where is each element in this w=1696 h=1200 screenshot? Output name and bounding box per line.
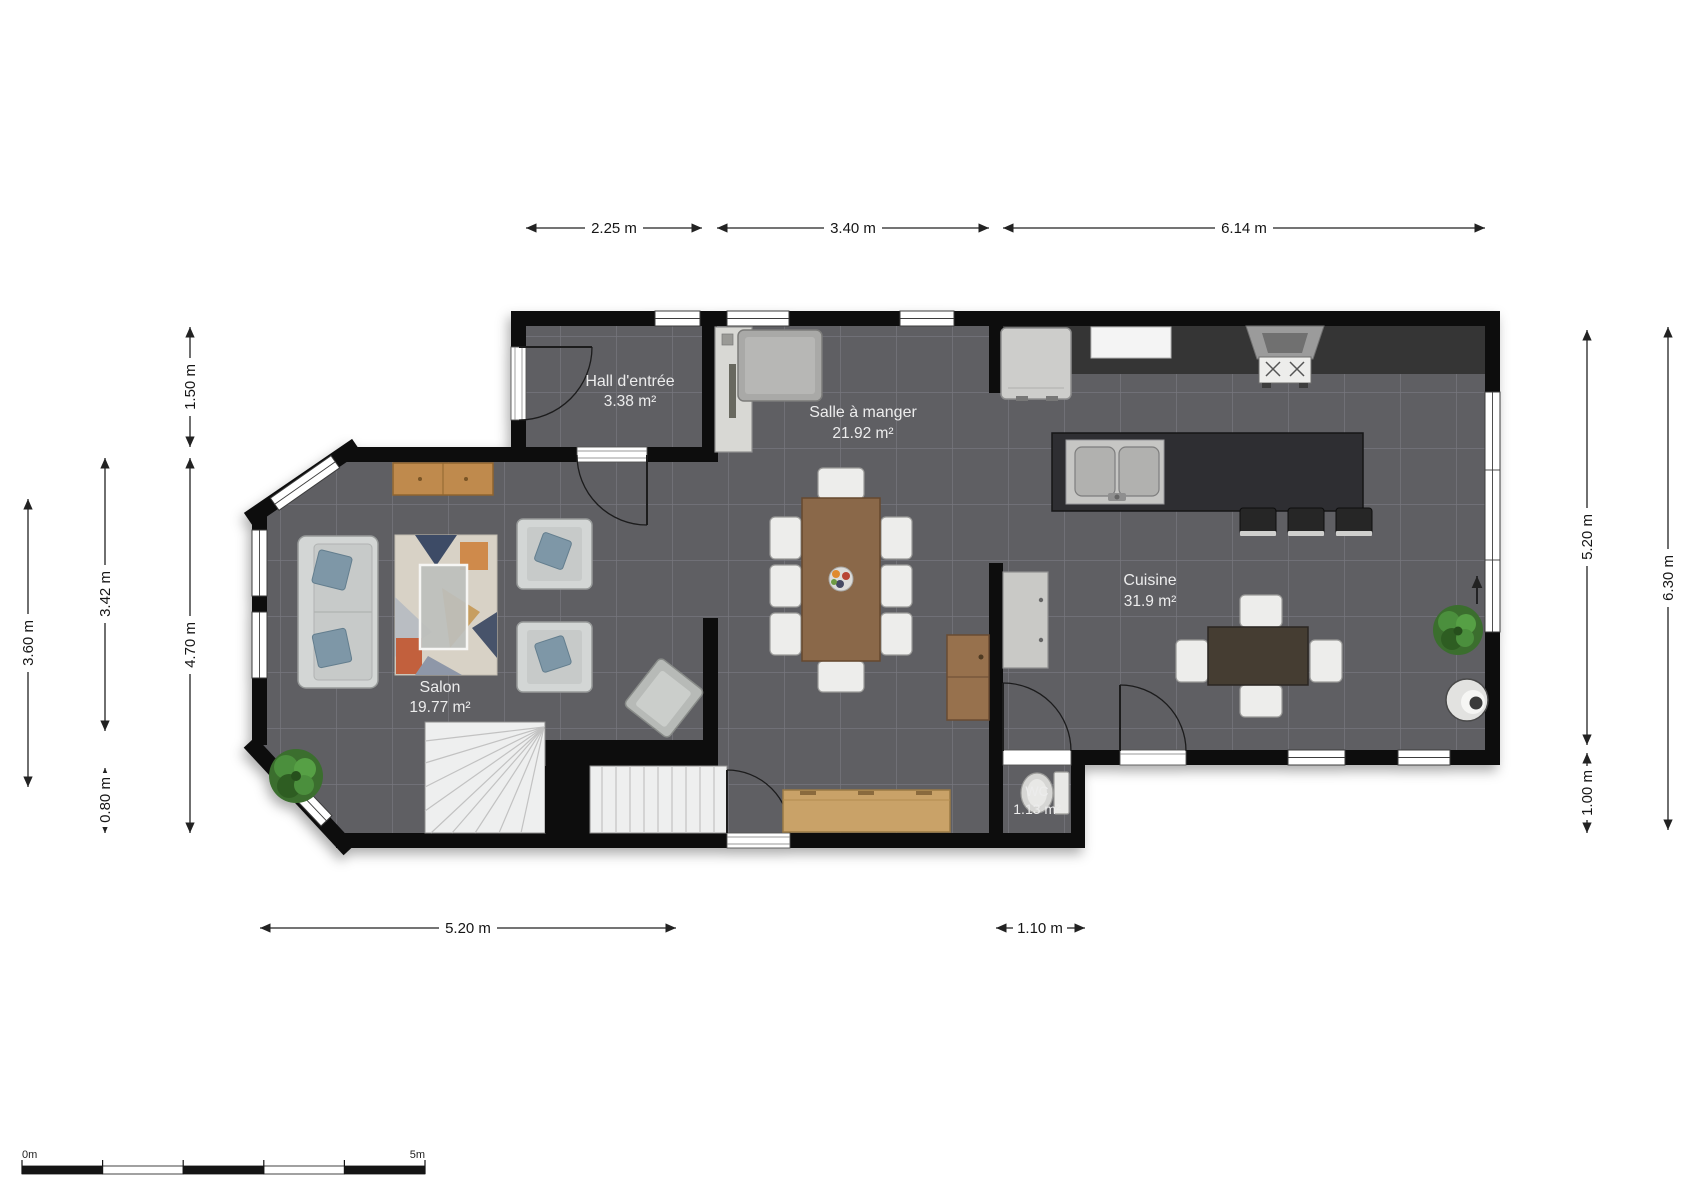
dining-chair-bottom xyxy=(818,661,864,692)
kitchen-table xyxy=(1208,627,1308,685)
dim-left-3-42: 3.42 m xyxy=(96,458,115,731)
fruit-bowl xyxy=(829,567,853,591)
svg-text:6.30 m: 6.30 m xyxy=(1660,555,1677,601)
dim-left-3-60: 3.60 m xyxy=(19,499,38,787)
dim-top-2-25: 2.25 m xyxy=(526,218,702,237)
wall-kitchen-stub-lower xyxy=(989,563,1003,848)
coffee-table xyxy=(420,565,467,649)
window-kitchen-bottom-2 xyxy=(1398,750,1450,765)
salon-sideboard xyxy=(393,463,493,495)
window-salon-left-2 xyxy=(252,612,267,678)
sofa xyxy=(298,536,378,688)
salon-plant xyxy=(269,749,323,803)
bar-stools xyxy=(1240,508,1372,536)
dining-chair-right-3 xyxy=(881,613,912,655)
floor-plan-page: Hall d'entrée 3.38 m² Salle à manger 21.… xyxy=(0,0,1696,1200)
dim-bottom-1-10: 1.10 m xyxy=(996,918,1085,937)
dim-left-0-80: 0.80 m xyxy=(96,768,115,833)
svg-text:0.80 m: 0.80 m xyxy=(97,777,114,823)
dim-right-6-30: 6.30 m xyxy=(1659,327,1678,830)
wall-stairs xyxy=(538,740,718,766)
building: Hall d'entrée 3.38 m² Salle à manger 21.… xyxy=(252,311,1500,848)
decor-bowl xyxy=(1446,679,1488,721)
svg-text:3.60 m: 3.60 m xyxy=(20,620,37,666)
cooktop xyxy=(1091,327,1171,358)
hall-label: Hall d'entrée xyxy=(585,373,674,390)
dining-chair-right-1 xyxy=(881,517,912,559)
dining-bench xyxy=(783,790,950,832)
dining-chair-left-1 xyxy=(770,517,801,559)
kitchen-chair-bottom xyxy=(1240,685,1282,717)
scale-bar: 0m 5m xyxy=(22,1149,425,1174)
kitchen-chair-left xyxy=(1176,640,1208,682)
dim-right-5-20: 5.20 m xyxy=(1578,330,1597,745)
window-top-hall xyxy=(655,311,700,326)
dining-brown-cabinet xyxy=(947,635,989,720)
svg-text:2.25 m: 2.25 m xyxy=(591,220,637,237)
sink-basin-right xyxy=(1119,447,1159,496)
svg-text:5.20 m: 5.20 m xyxy=(1579,514,1596,560)
bar-stool-2 xyxy=(1288,508,1324,536)
fridge xyxy=(1001,328,1071,401)
kitchen-gray-cabinet xyxy=(1003,572,1048,668)
dim-bottom-5-20: 5.20 m xyxy=(260,918,676,937)
wc-label: WC xyxy=(1025,783,1048,799)
window-salon-left-1 xyxy=(252,530,267,596)
kitchen-area: 31.9 m² xyxy=(1124,593,1177,610)
sofa-pillow-1 xyxy=(311,549,352,590)
scale-start-label: 0m xyxy=(22,1149,37,1161)
svg-text:1.00 m: 1.00 m xyxy=(1579,770,1596,816)
svg-text:4.70 m: 4.70 m xyxy=(182,622,199,668)
stairs-void xyxy=(545,766,590,833)
dining-chair-left-3 xyxy=(770,613,801,655)
bar-stool-1 xyxy=(1240,508,1276,536)
armchair-1 xyxy=(517,519,592,589)
dim-right-1-00: 1.00 m xyxy=(1578,753,1597,833)
armchair-2 xyxy=(517,622,592,692)
dining-sideboard xyxy=(738,330,822,401)
wall-bottom xyxy=(336,833,1085,848)
svg-text:5.20 m: 5.20 m xyxy=(445,920,491,937)
svg-text:1.50 m: 1.50 m xyxy=(182,364,199,410)
kitchen-counter xyxy=(1003,326,1485,374)
scale-bar-segments xyxy=(22,1166,425,1174)
kitchen-island xyxy=(1052,433,1363,511)
svg-text:3.40 m: 3.40 m xyxy=(830,220,876,237)
kitchen-chair-right xyxy=(1310,640,1342,682)
salon-area: 19.77 m² xyxy=(409,699,470,716)
svg-text:1.10 m: 1.10 m xyxy=(1017,920,1063,937)
svg-text:6.14 m: 6.14 m xyxy=(1221,220,1267,237)
kitchen-label: Cuisine xyxy=(1123,572,1176,589)
dining-chair-top xyxy=(818,468,864,499)
window-kitchen-bottom-1 xyxy=(1288,750,1345,765)
dim-left-1-50: 1.50 m xyxy=(181,327,200,447)
wc-area: 1.13 m² xyxy=(1013,801,1061,817)
salon-label: Salon xyxy=(420,679,461,696)
dining-label: Salle à manger xyxy=(809,404,917,421)
dim-top-6-14: 6.14 m xyxy=(1003,218,1485,237)
svg-text:3.42 m: 3.42 m xyxy=(97,571,114,617)
dining-area: 21.92 m² xyxy=(832,425,893,442)
dining-chair-right-2 xyxy=(881,565,912,607)
dim-left-4-70: 4.70 m xyxy=(181,458,200,833)
window-top-dining-2 xyxy=(900,311,954,326)
sink-basin-left xyxy=(1075,447,1115,496)
floor-plan-svg: Hall d'entrée 3.38 m² Salle à manger 21.… xyxy=(0,0,1696,1200)
hall-area: 3.38 m² xyxy=(604,393,657,410)
kitchen-plant xyxy=(1433,605,1483,655)
window-top-dining-1 xyxy=(727,311,789,326)
bar-stool-3 xyxy=(1336,508,1372,536)
kitchen-chair-top xyxy=(1240,595,1282,627)
dim-top-3-40: 3.40 m xyxy=(717,218,989,237)
window-right-kitchen xyxy=(1485,392,1500,632)
dining-chair-left-2 xyxy=(770,565,801,607)
wall-stairs-stub xyxy=(703,618,718,753)
wall-salon-top-left xyxy=(345,447,577,462)
scale-end-label: 5m xyxy=(410,1149,425,1161)
sofa-pillow-2 xyxy=(312,628,352,668)
